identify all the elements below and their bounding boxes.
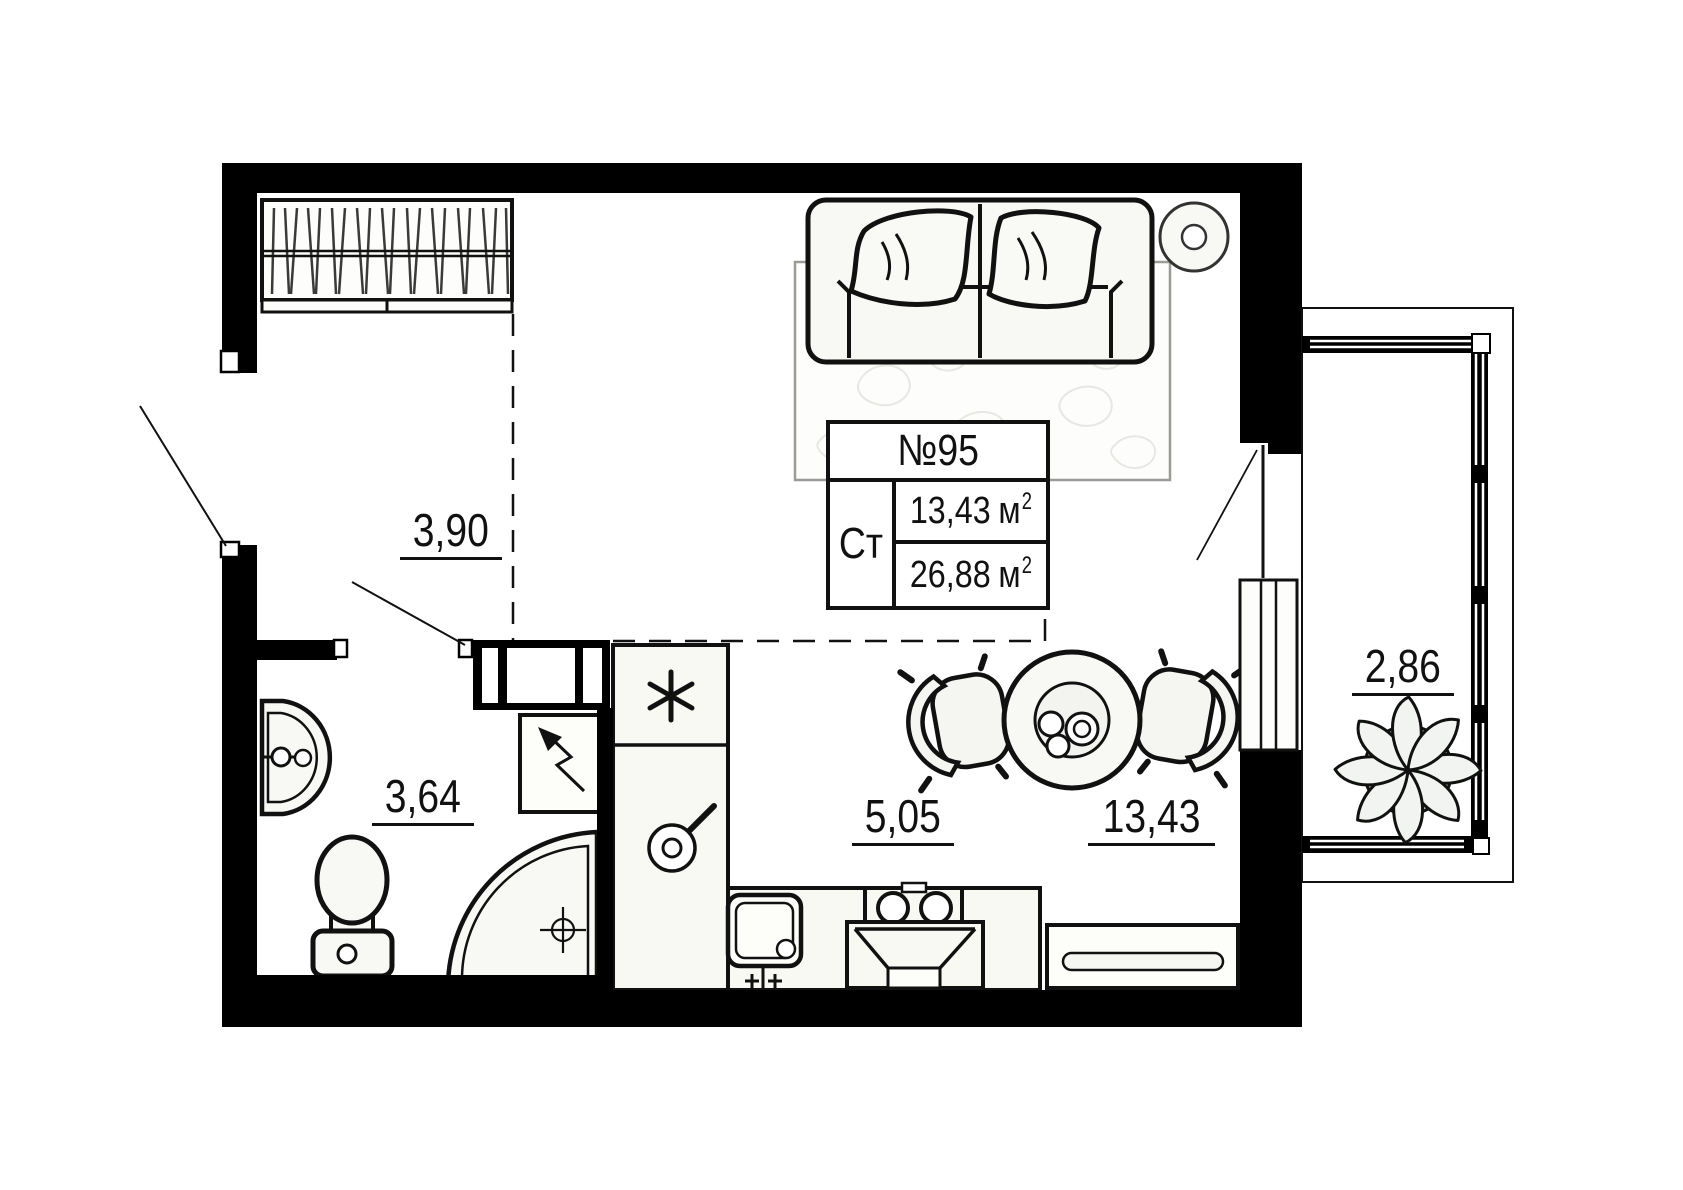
entry-door xyxy=(140,406,226,546)
dining-table xyxy=(1004,652,1140,788)
balcony xyxy=(1302,308,1513,882)
balcony-window-block xyxy=(1240,580,1297,750)
unit-type-label: Ст xyxy=(830,482,896,606)
unit-info-card: №95 Ст 13,43м2 26,88м2 xyxy=(826,420,1050,610)
toilet xyxy=(313,837,392,976)
bathroom-door xyxy=(352,582,465,645)
wardrobe xyxy=(262,200,512,312)
room-label-balcony: 2,86 xyxy=(1352,642,1454,696)
vent-shaft xyxy=(473,640,610,710)
floor-lamp xyxy=(1160,203,1228,271)
unit-total-area: 26,88м2 xyxy=(896,544,1046,606)
shower xyxy=(448,832,597,988)
floor-plan-canvas: №95 Ст 13,43м2 26,88м2 3,90 3,64 5,05 13… xyxy=(0,0,1683,1190)
water-heater xyxy=(520,715,603,812)
room-label-living: 13,43 xyxy=(1088,792,1215,846)
room-label-bathroom: 3,64 xyxy=(372,772,474,826)
dining-chair-right xyxy=(1130,650,1247,787)
bathroom-sink xyxy=(262,701,330,814)
room-label-kitchen: 5,05 xyxy=(852,792,954,846)
room-label-hallway: 3,90 xyxy=(400,506,502,560)
dining-chair-left xyxy=(899,655,1016,792)
balcony-door xyxy=(1197,445,1263,578)
unit-living-area: 13,43м2 xyxy=(896,482,1046,544)
plant-icon xyxy=(1333,695,1483,845)
sofa xyxy=(808,200,1152,362)
radiator-cabinet xyxy=(1047,925,1238,988)
unit-number: №95 xyxy=(830,424,1046,482)
